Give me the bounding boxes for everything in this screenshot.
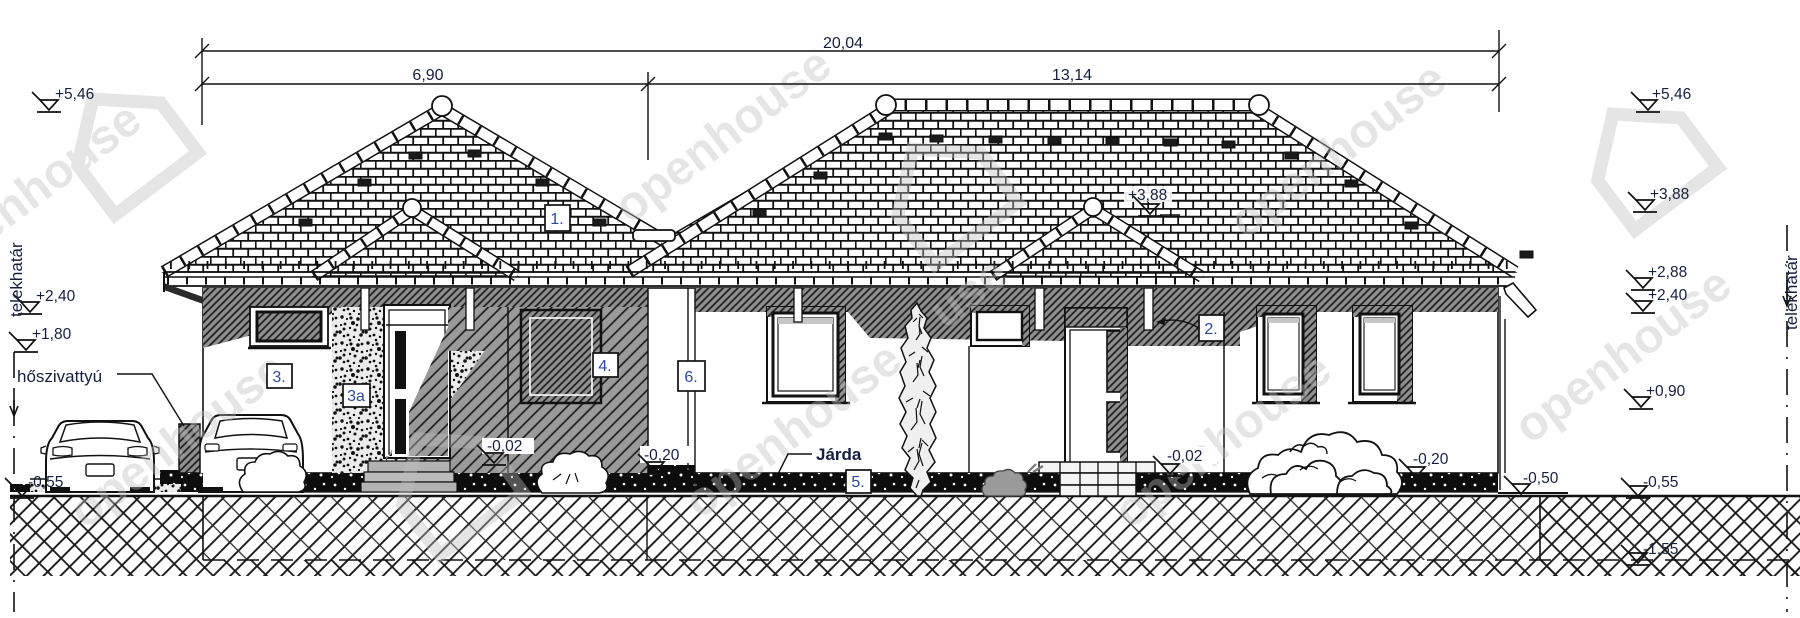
svg-text:+0,90: +0,90 (1646, 383, 1686, 400)
svg-text:-0,02: -0,02 (487, 438, 522, 455)
svg-text:-0,55: -0,55 (28, 474, 63, 491)
svg-text:+3,88: +3,88 (1128, 187, 1167, 204)
svg-text:Járda: Járda (816, 445, 862, 464)
svg-text:-0,20: -0,20 (644, 447, 680, 464)
svg-text:-0,55: -0,55 (1643, 474, 1678, 491)
svg-text:-0,02: -0,02 (1167, 448, 1202, 465)
svg-text:13,14: 13,14 (1052, 67, 1092, 84)
svg-text:+2,88: +2,88 (1648, 264, 1687, 281)
svg-text:6.: 6. (684, 369, 697, 386)
svg-text:3a: 3a (347, 388, 365, 405)
svg-text:-0,20: -0,20 (1413, 451, 1449, 468)
svg-text:3.: 3. (272, 369, 285, 386)
svg-text:+2,40: +2,40 (1648, 287, 1688, 304)
svg-text:+2,40: +2,40 (36, 288, 76, 305)
svg-text:telekhatár: telekhatár (7, 242, 26, 317)
svg-text:5.: 5. (851, 474, 864, 491)
svg-text:+5,46: +5,46 (55, 86, 94, 103)
svg-text:+5,46: +5,46 (1652, 86, 1691, 103)
svg-text:20,04: 20,04 (823, 35, 863, 52)
svg-text:-1,55: -1,55 (1643, 541, 1678, 558)
svg-text:6,90: 6,90 (412, 67, 443, 84)
svg-text:hőszivattyú: hőszivattyú (17, 367, 102, 386)
svg-text:+1,80: +1,80 (32, 326, 72, 343)
svg-text:telekhatár: telekhatár (1782, 255, 1800, 330)
svg-text:1.: 1. (550, 211, 563, 228)
svg-text:+3,88: +3,88 (1650, 186, 1689, 203)
svg-text:4.: 4. (598, 358, 611, 375)
svg-text:-0,50: -0,50 (1523, 470, 1559, 487)
svg-text:2.: 2. (1204, 321, 1217, 338)
